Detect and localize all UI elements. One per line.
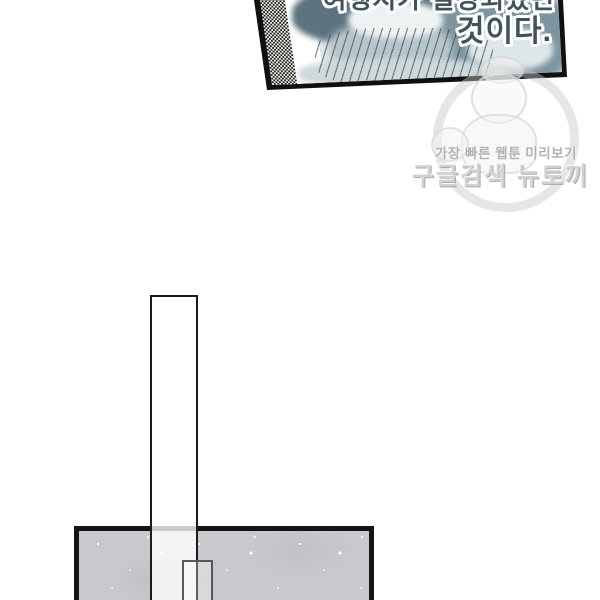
watermark-brand: 구글검색 뉴토끼: [412, 156, 588, 191]
dialogue-line2: 것이다.: [457, 14, 552, 50]
bottom-panel: [74, 526, 374, 600]
dialogue-line1: 여행지가 결정되었던: [322, 0, 555, 14]
inner-rectangle: [182, 560, 213, 600]
vertical-panel: [150, 295, 198, 600]
comic-page: 여행지가 결정되었던 것이다. 가장 빠른 웹툰 미리보기 구글검색 뉴토끼: [0, 0, 600, 600]
